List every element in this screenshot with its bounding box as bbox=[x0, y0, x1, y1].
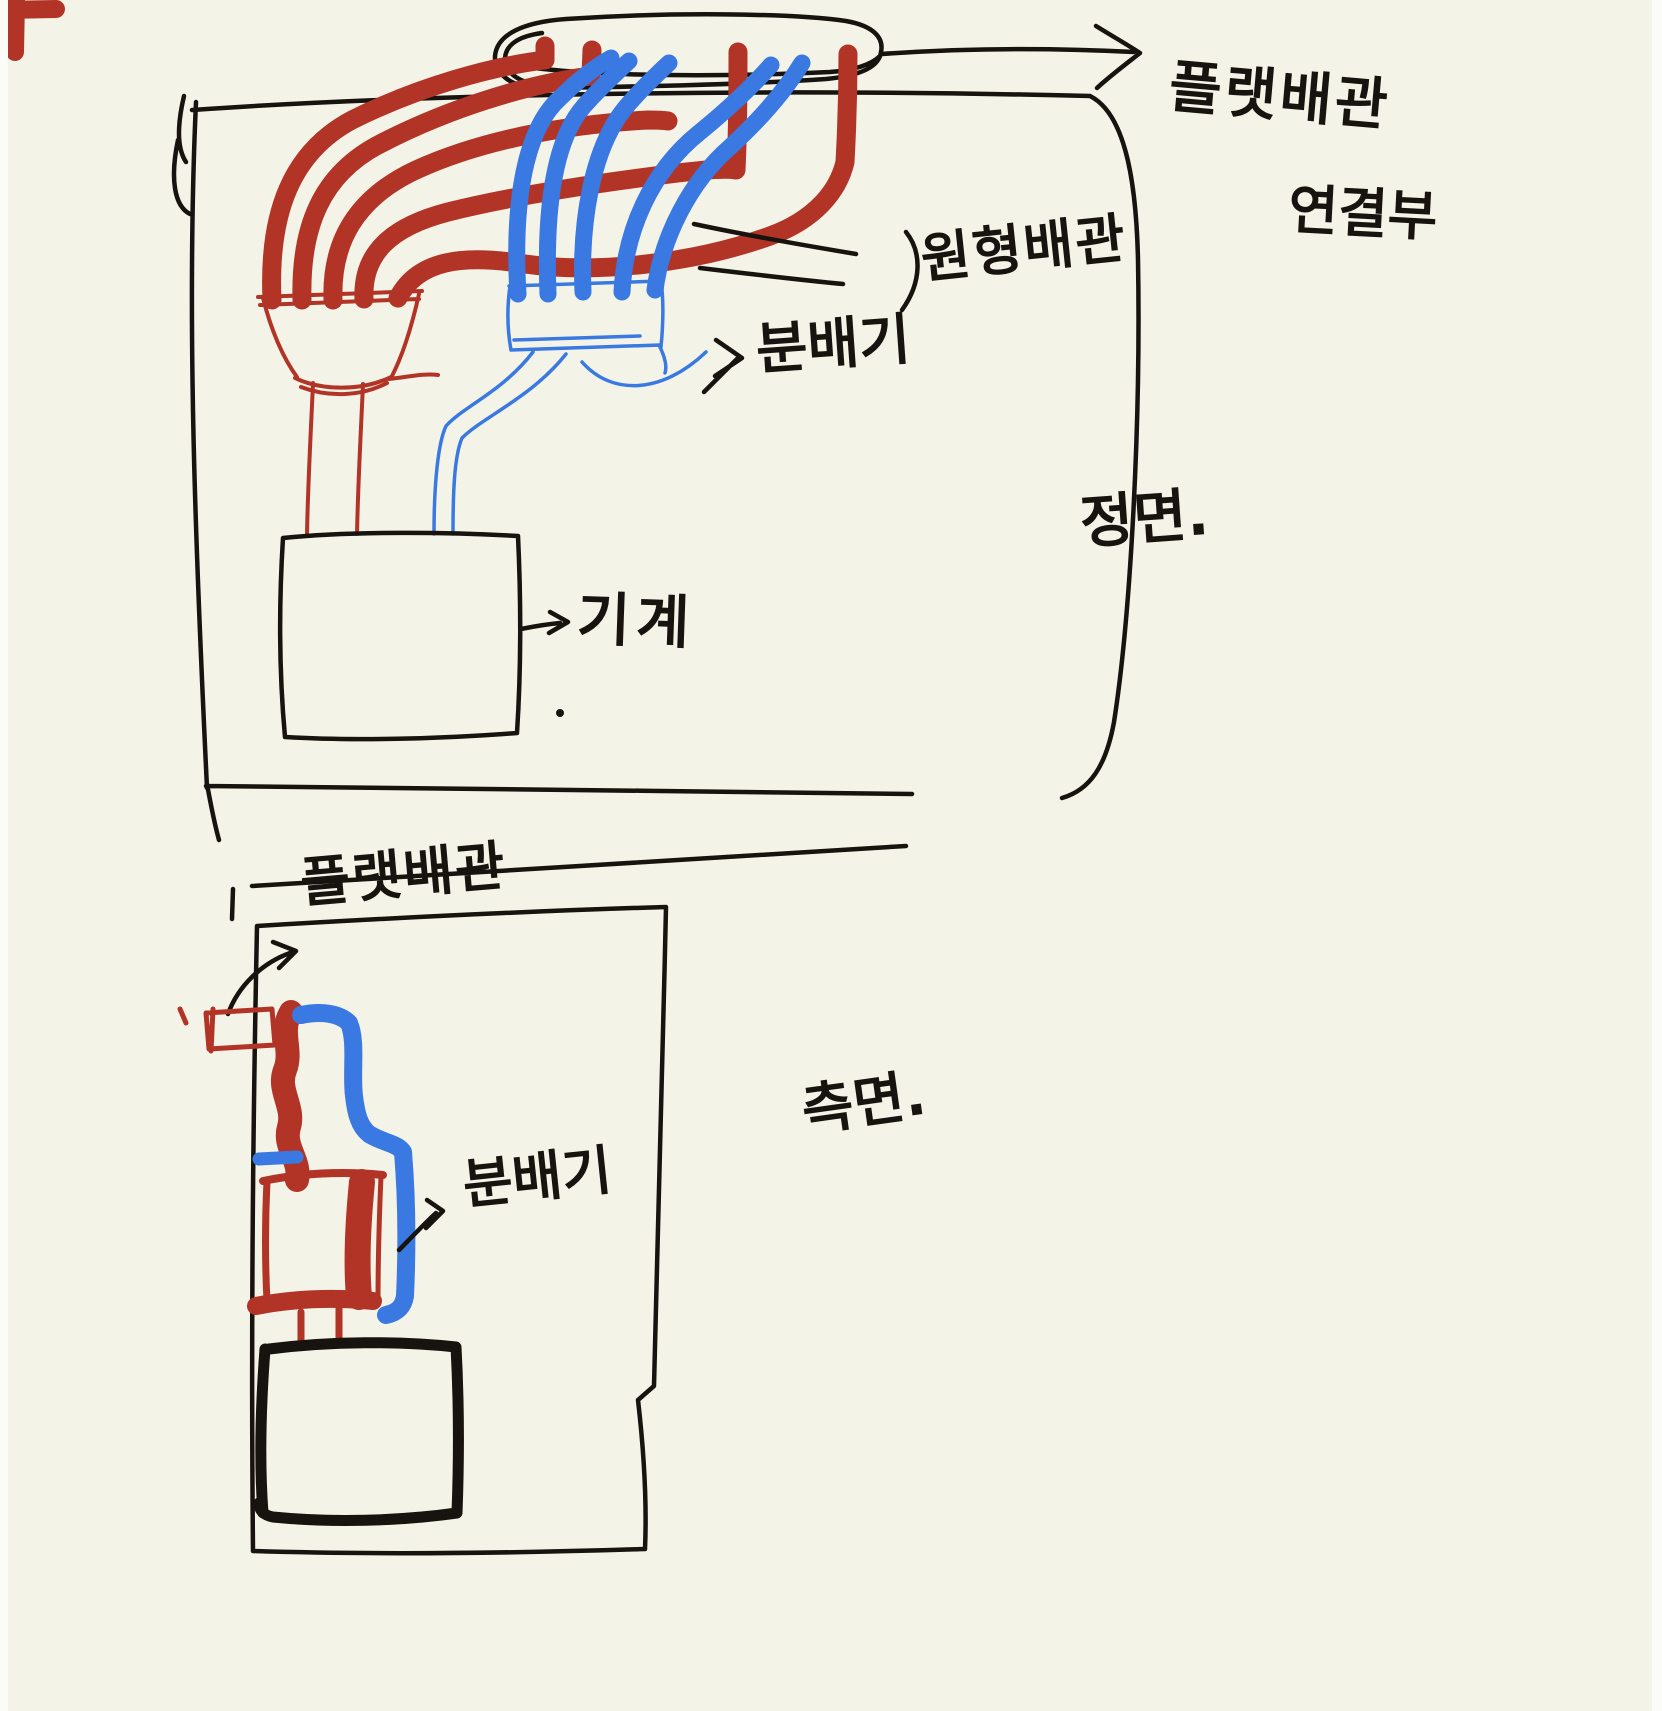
red-corner-mark bbox=[4, 0, 56, 52]
side-wall-strokes bbox=[232, 889, 666, 1553]
side-wall-outline bbox=[232, 889, 666, 1553]
sketch-drawing bbox=[0, 0, 1662, 1711]
blue-stub-stroke bbox=[259, 1157, 297, 1159]
manifold-bottom-edge bbox=[256, 1299, 373, 1306]
manifold-left-edge-and-stubs bbox=[266, 1181, 340, 1344]
blue-manifold bbox=[434, 281, 706, 534]
machine-outline bbox=[259, 1343, 458, 1521]
canvas-right-margin bbox=[1652, 0, 1662, 1711]
front-view-title: 정면. bbox=[1078, 483, 1211, 556]
label-machine: 기계 bbox=[576, 588, 697, 656]
machine-outline bbox=[280, 533, 568, 739]
canvas-left-margin bbox=[0, 0, 8, 1711]
machine-box-side bbox=[259, 1343, 458, 1521]
red-manifold bbox=[258, 291, 438, 534]
front-view-drawing bbox=[174, 14, 1140, 886]
blue-manifold-outline bbox=[434, 281, 706, 534]
arrow-to-flat-pipe-connection-label bbox=[882, 26, 1140, 88]
arrows-to-round-pipe-label bbox=[694, 224, 918, 310]
arrow-stroke bbox=[704, 340, 742, 392]
sketch-page: 플랫배관 연결부 원형배관 분배기 기계 정면. 플랫배관 분배기 측면. bbox=[0, 0, 1662, 1711]
label-flat-pipe-connection-line2: 연결부 bbox=[1287, 180, 1439, 247]
manifold-fill-bar bbox=[358, 1182, 362, 1297]
corner-stroke bbox=[4, 0, 56, 52]
manifold-right-edge bbox=[378, 1176, 381, 1303]
red-manifold-side bbox=[256, 1173, 383, 1344]
arrow-to-manifold-label-front bbox=[704, 340, 742, 392]
side-view-drawing bbox=[180, 889, 666, 1553]
leader-strokes bbox=[694, 224, 918, 310]
label-manifold-front: 분배기 bbox=[754, 309, 912, 381]
arrow-stroke bbox=[882, 26, 1140, 88]
machine-box-front bbox=[280, 533, 568, 739]
red-manifold-outline bbox=[258, 291, 438, 534]
stray-dot bbox=[556, 709, 564, 717]
